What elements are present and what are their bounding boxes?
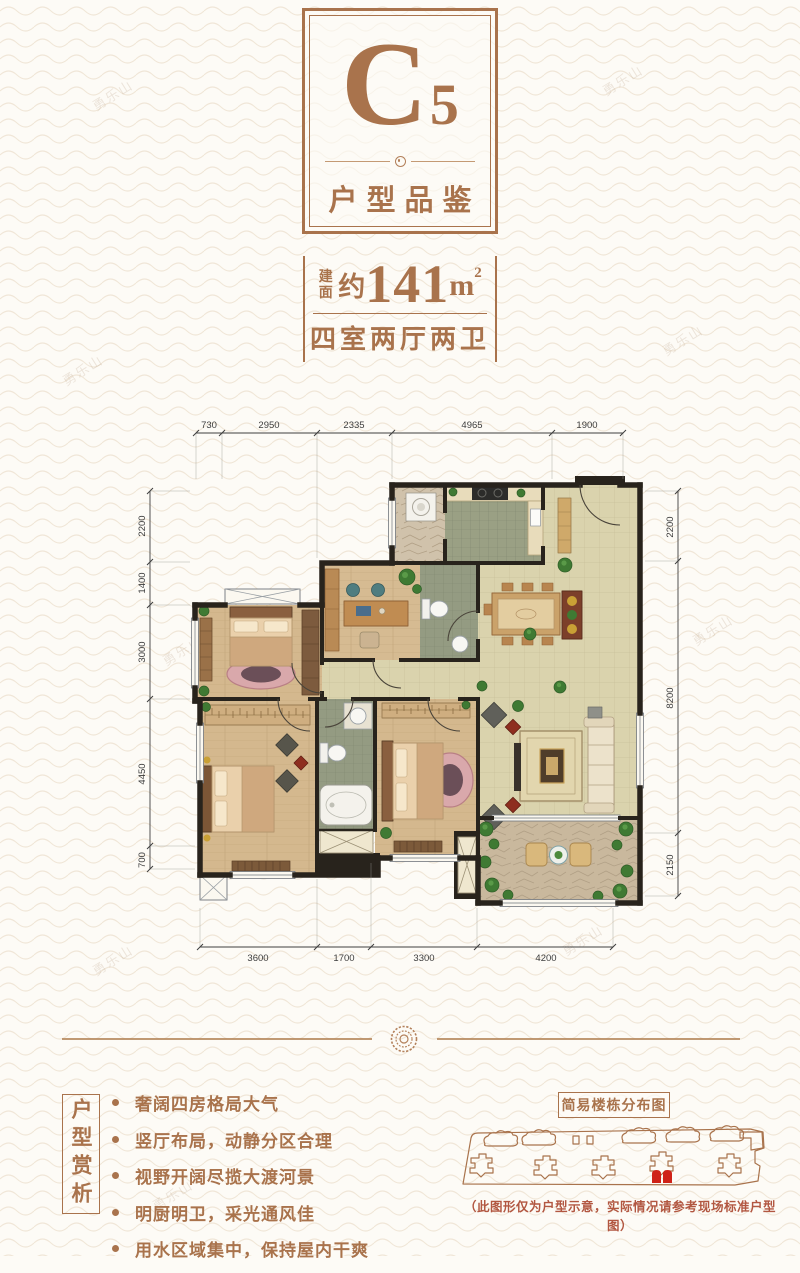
svg-text:700: 700	[137, 852, 148, 868]
analysis-title-box: 户型赏析	[62, 1094, 100, 1214]
svg-text:1700: 1700	[333, 953, 354, 964]
analysis-item: 奢阔四房格局大气	[104, 1090, 434, 1115]
building-distribution-map	[455, 1124, 785, 1192]
svg-text:4200: 4200	[535, 953, 556, 964]
svg-text:1400: 1400	[137, 572, 148, 593]
header-ornament-divider	[325, 156, 475, 167]
built-area-label: 建面	[318, 268, 333, 300]
bullet-dot-icon	[112, 1136, 119, 1143]
distribution-disclaimer: （此图形仅为户型示意，实际情况请参考现场标准户型图）	[455, 1196, 785, 1234]
room-layout-label: 四室两厅两卫	[305, 314, 495, 356]
distribution-title-box: 简易楼栋分布图	[558, 1092, 670, 1118]
svg-text:2950: 2950	[258, 420, 279, 431]
entry-cabinet	[558, 498, 571, 553]
built-area-line: 建面 约 141 m2	[305, 258, 495, 310]
analysis-item: 视野开阔尽揽大渡河景	[104, 1163, 434, 1188]
dot-ornament-icon	[395, 156, 406, 167]
svg-text:2150: 2150	[665, 854, 676, 875]
approx-label: 约	[338, 265, 365, 304]
dining-sideboard	[562, 591, 582, 639]
distribution-title: 简易楼栋分布图	[562, 1095, 667, 1115]
balcony-furniture	[526, 843, 591, 866]
svg-text:1900: 1900	[576, 420, 597, 431]
svg-text:2335: 2335	[343, 420, 364, 431]
area-unit: m2	[449, 265, 482, 303]
section-divider	[0, 1022, 800, 1056]
unit-code: C5	[341, 24, 459, 152]
svg-text:8200: 8200	[665, 687, 676, 708]
analysis-item: 竖厅布局，动静分区合理	[104, 1127, 434, 1152]
washing-machine	[406, 493, 436, 521]
analysis-title: 户型赏析	[66, 1098, 96, 1210]
unit-code-number: 5	[430, 76, 459, 134]
svg-text:4450: 4450	[137, 763, 148, 784]
analysis-item: 明厨明卫，采光通风佳	[104, 1200, 434, 1225]
highlighted-building	[652, 1170, 672, 1183]
area-value: 141	[365, 260, 449, 309]
room-floors	[195, 485, 640, 903]
rosette-ornament-icon	[392, 1027, 417, 1052]
floor-plan: 730 2950 2335 4965 1900 2200 1400 3000 4…	[120, 413, 700, 975]
unit-code-box: C5 户型品鉴	[302, 8, 498, 234]
svg-text:3600: 3600	[247, 953, 268, 964]
bullet-dot-icon	[112, 1099, 119, 1106]
svg-text:730: 730	[201, 420, 217, 431]
bullet-dot-icon	[112, 1172, 119, 1179]
svg-text:2200: 2200	[137, 515, 148, 536]
svg-text:2200: 2200	[665, 516, 676, 537]
bullet-dot-icon	[112, 1209, 119, 1216]
analysis-bullet-list: 奢阔四房格局大气 竖厅布局，动静分区合理 视野开阔尽揽大渡河景 明厨明卫，采光通…	[104, 1090, 434, 1273]
unit-code-letter: C	[341, 24, 428, 144]
area-info: 建面 约 141 m2 四室两厅两卫	[303, 256, 497, 362]
svg-text:3000: 3000	[137, 641, 148, 662]
analysis-item: 用水区域集中，保持屋内干爽	[104, 1236, 434, 1261]
header-subtitle: 户型品鉴	[319, 177, 480, 219]
svg-text:4965: 4965	[461, 420, 482, 431]
bullet-dot-icon	[112, 1245, 119, 1252]
svg-text:3300: 3300	[413, 953, 434, 964]
unit-code-box-inner: C5 户型品鉴	[309, 15, 491, 227]
